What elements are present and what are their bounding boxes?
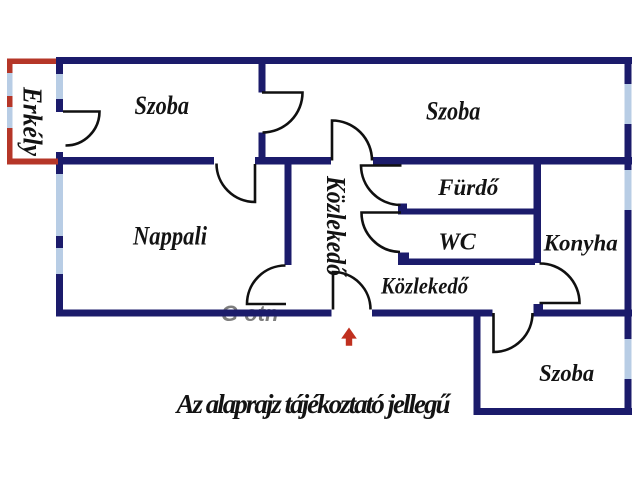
- svg-text:Erkély: Erkély: [18, 86, 48, 157]
- svg-text:Közlekedő: Közlekedő: [380, 274, 469, 300]
- svg-text:Fürdő: Fürdő: [437, 175, 500, 200]
- svg-text:Az alaprajz tájékoztató jelleg: Az alaprajz tájékoztató jellegű: [175, 389, 452, 419]
- svg-text:Szoba: Szoba: [539, 361, 594, 387]
- svg-text:Közlekedő: Közlekedő: [321, 175, 351, 277]
- svg-text:Nappali: Nappali: [132, 222, 208, 251]
- svg-text:Konyha: Konyha: [543, 230, 618, 255]
- svg-text:WC: WC: [438, 229, 476, 255]
- svg-text:Szoba: Szoba: [135, 91, 190, 120]
- svg-text:Szoba: Szoba: [426, 97, 481, 126]
